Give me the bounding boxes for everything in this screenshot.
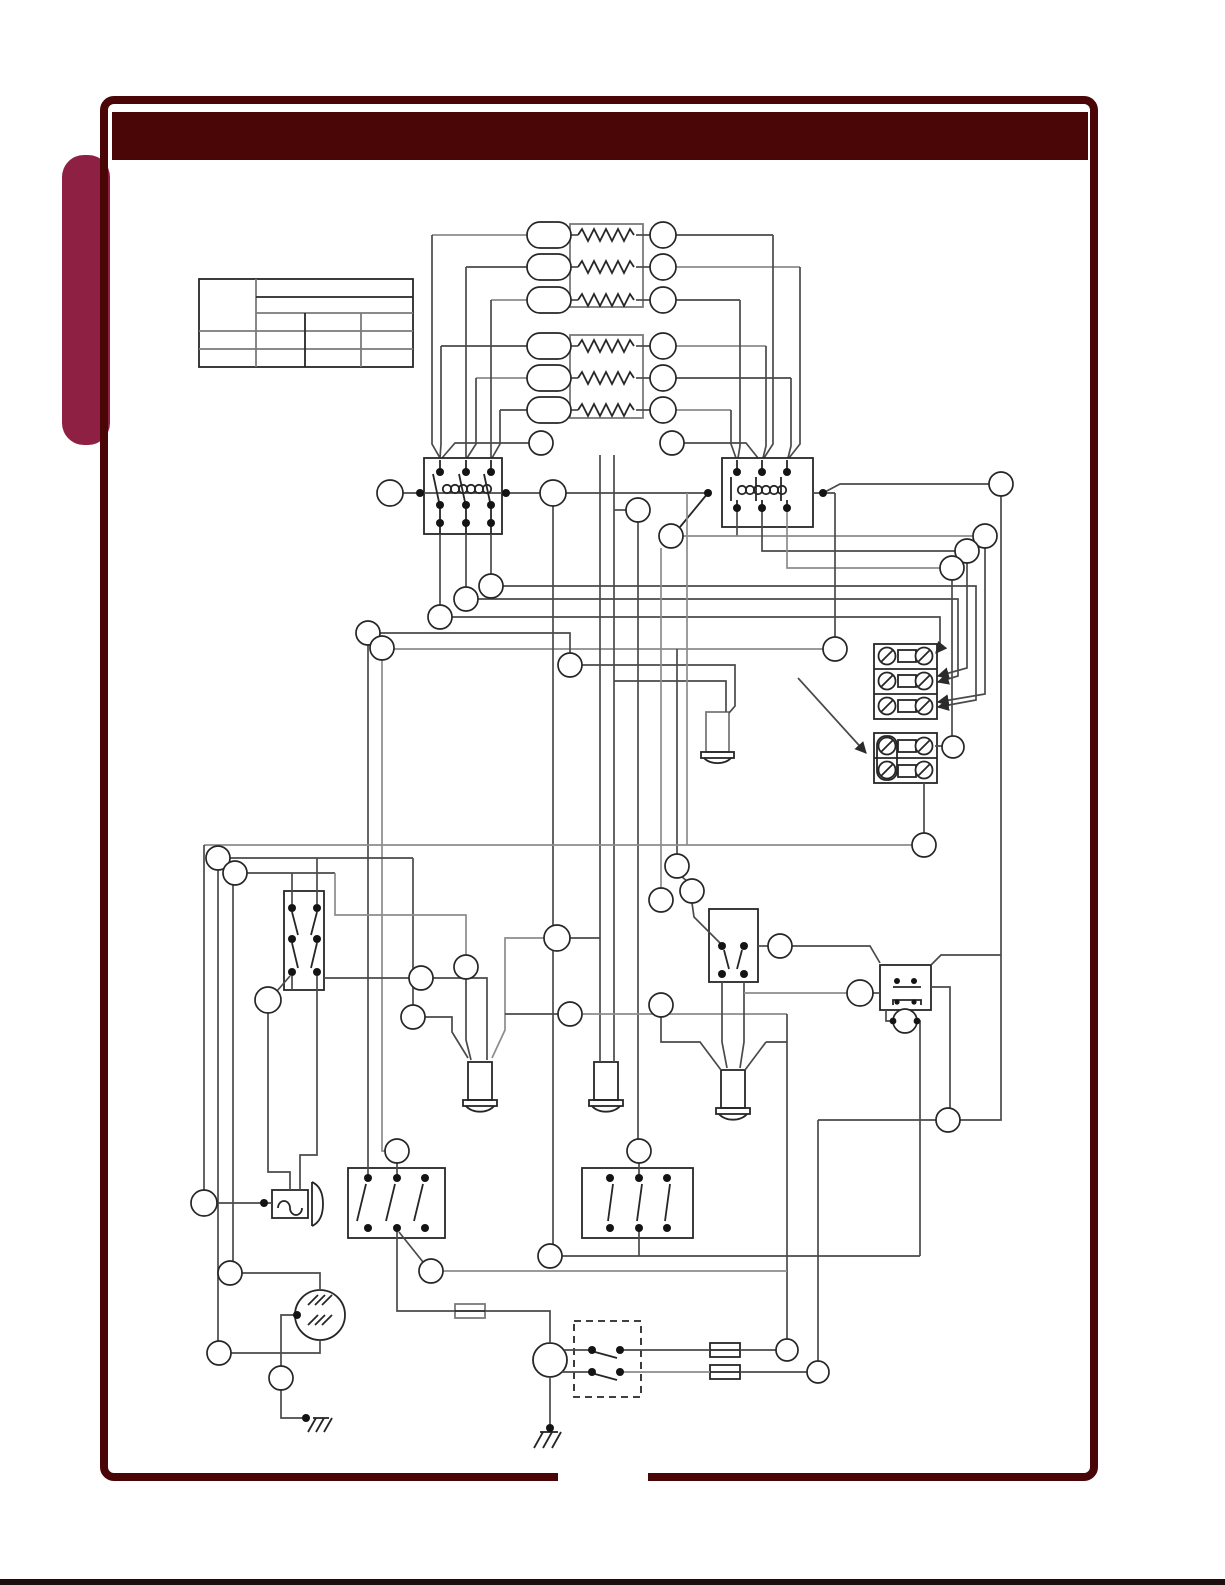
wire-label xyxy=(823,637,847,661)
switch-blade xyxy=(357,1184,366,1221)
resistor-element xyxy=(578,372,634,384)
switch-blade xyxy=(414,1184,423,1221)
transformer-circle xyxy=(533,1343,567,1377)
wire-label xyxy=(776,1339,798,1361)
wire-label xyxy=(627,1139,651,1163)
wire-label xyxy=(680,879,704,903)
wire-label xyxy=(912,833,936,857)
wire-label xyxy=(659,524,683,548)
enclosed-switch xyxy=(574,1321,641,1397)
wire-label xyxy=(936,1108,960,1132)
switch-blade xyxy=(595,1374,617,1380)
switch-blade xyxy=(386,1184,395,1221)
wire-label xyxy=(768,934,792,958)
terminal-block-lower xyxy=(874,733,942,783)
switch-blade xyxy=(665,1184,670,1221)
wire-label xyxy=(650,397,676,423)
resistor-element xyxy=(578,229,634,241)
probe-upper xyxy=(701,712,734,763)
wire-label xyxy=(626,498,650,522)
switch-dpst-right xyxy=(692,903,758,982)
motor xyxy=(295,1290,345,1340)
wire-label xyxy=(649,888,673,912)
ground-left xyxy=(308,1418,332,1432)
wire-label xyxy=(269,1366,293,1390)
wire-label xyxy=(650,254,676,280)
wire-label xyxy=(377,480,403,506)
aux-blade xyxy=(680,493,708,527)
probe-lower-center xyxy=(589,1062,623,1112)
wire-label xyxy=(529,431,553,455)
probe-lower-right xyxy=(716,1070,750,1120)
wire-label xyxy=(454,955,478,979)
wire-label xyxy=(665,854,689,878)
resistor-element xyxy=(578,294,634,306)
wire-label xyxy=(660,431,684,455)
wire-label-oval xyxy=(527,333,571,359)
wire-label xyxy=(409,966,433,990)
wire-label xyxy=(942,736,964,758)
buzzer-horn-icon xyxy=(312,1182,323,1226)
fuses xyxy=(455,1304,740,1379)
contactor-left xyxy=(403,458,540,534)
wire-label xyxy=(847,980,873,1006)
buzzer-coil-icon xyxy=(278,1201,302,1215)
wire-label xyxy=(807,1361,829,1383)
switch-blade xyxy=(292,943,298,968)
wire-label xyxy=(649,993,673,1017)
wire-label xyxy=(650,365,676,391)
motor-hatch-icon xyxy=(308,1295,332,1325)
switch-blade xyxy=(637,1184,642,1221)
wire-label xyxy=(650,287,676,313)
contact-blade xyxy=(484,474,490,502)
wire-label xyxy=(650,333,676,359)
wire-label xyxy=(385,1139,409,1163)
page-bottom-edge xyxy=(0,1579,1225,1585)
wire-label xyxy=(558,1002,582,1026)
coil xyxy=(738,486,786,494)
wire-label xyxy=(558,653,582,677)
wire-label xyxy=(989,472,1013,496)
wire-label xyxy=(191,1190,217,1216)
wire-label xyxy=(428,605,452,629)
terminal-block-upper xyxy=(874,644,937,719)
wire-label xyxy=(223,861,247,885)
wiring-diagram-canvas xyxy=(0,0,1225,1585)
buzzer xyxy=(272,1182,323,1226)
heater-bank-1 xyxy=(570,224,643,307)
relay-contact-block xyxy=(880,965,931,1010)
wire-label-oval xyxy=(527,287,571,313)
wire-label xyxy=(650,222,676,248)
header-bar xyxy=(112,112,1088,160)
probe-lower-left xyxy=(463,1062,497,1112)
resistor-element xyxy=(578,404,634,416)
wire-label-oval xyxy=(527,222,571,248)
switch-blade xyxy=(311,943,317,968)
switch-blade xyxy=(724,950,729,969)
dashed-enclosure xyxy=(574,1321,641,1397)
junction-dots xyxy=(260,468,920,1432)
contact-blade xyxy=(433,474,439,502)
border-gap xyxy=(558,1466,648,1488)
heater-bank-2 xyxy=(570,335,643,418)
wire-label xyxy=(419,1259,443,1283)
wire-label-oval xyxy=(527,397,571,423)
resistor-element xyxy=(578,261,634,273)
bank-leads xyxy=(432,235,800,458)
switch-blade xyxy=(608,1184,613,1221)
wire-label xyxy=(255,987,281,1013)
wire-label xyxy=(207,1341,231,1365)
page-frame xyxy=(0,100,1225,1585)
wire-label xyxy=(540,480,566,506)
wire-label xyxy=(893,1009,917,1033)
wire-label xyxy=(218,1261,242,1285)
coil xyxy=(443,485,491,493)
wire-label xyxy=(454,587,478,611)
resistor-element xyxy=(578,340,634,352)
manual-page xyxy=(0,0,1225,1585)
wire-label xyxy=(479,574,503,598)
spec-table xyxy=(199,279,413,367)
wire-label-oval xyxy=(527,254,571,280)
wire-label xyxy=(940,556,964,580)
switch-blade xyxy=(737,950,742,969)
ground-center xyxy=(534,1432,561,1448)
switch-blade xyxy=(292,912,298,935)
switch-blade xyxy=(311,912,317,935)
wire-labels xyxy=(191,222,1013,1390)
wire-label xyxy=(401,1005,425,1029)
wire-label xyxy=(538,1244,562,1268)
wire-label xyxy=(544,925,570,951)
wire-label-oval xyxy=(527,365,571,391)
switch-blade xyxy=(595,1352,617,1358)
wire-label xyxy=(370,636,394,660)
